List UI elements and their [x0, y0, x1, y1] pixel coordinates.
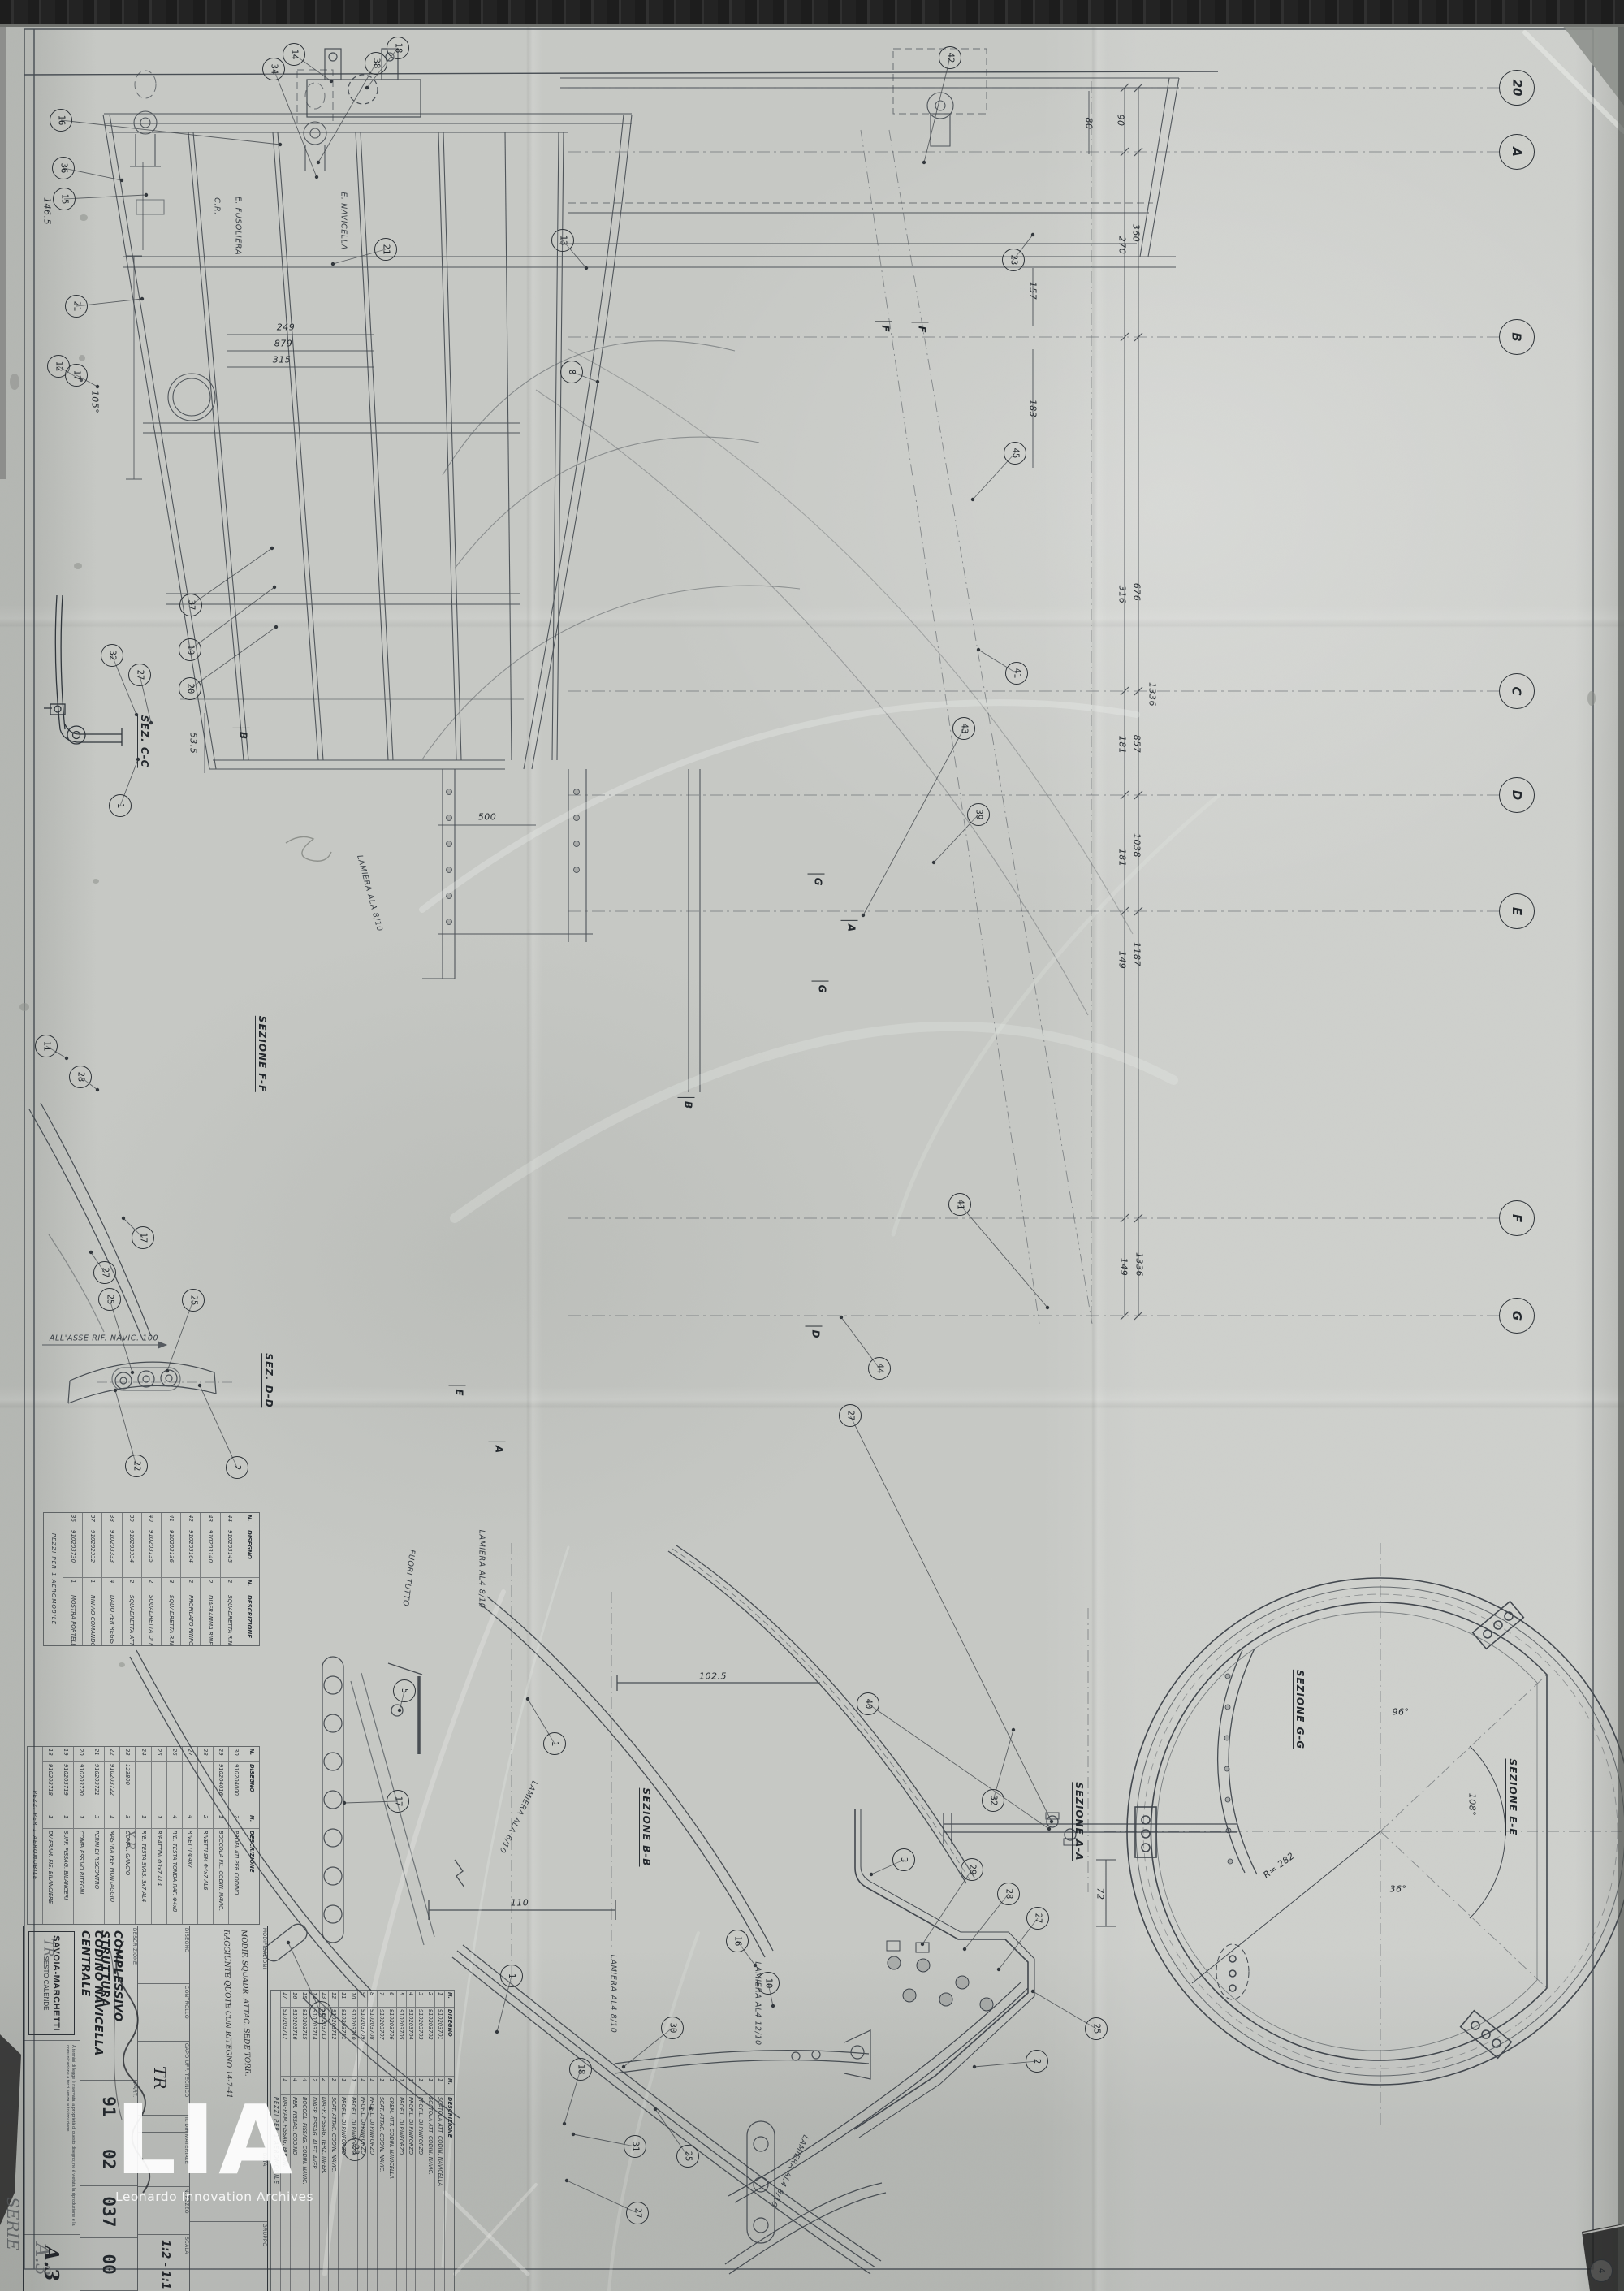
part-qty: 2	[229, 1813, 244, 1829]
part-qty: 1	[105, 1813, 119, 1829]
gruppo-label: GRUPPO	[261, 2224, 266, 2246]
part-number: 910203135	[142, 1528, 161, 1578]
part-qty: 1	[425, 2077, 434, 2095]
revision-note-1: MODIF. SQUADR. ATTAC. SEDE TORR.	[240, 1930, 252, 2077]
part-qty: 1	[281, 2077, 290, 2095]
part-description: SCAT. ATTAC. CODIN. NAVIC.	[329, 2095, 338, 2291]
part-index: 43	[201, 1513, 219, 1528]
sheet-code: A.3	[40, 2246, 63, 2281]
part-number: 910203711	[339, 2008, 348, 2077]
part-description: SQUADRETTA ATTACCO	[123, 1593, 141, 1645]
parts-table-upper: N.DISEGNON.DESCRIZIONE449102031452SQUADR…	[43, 1512, 260, 1646]
part-qty: 1	[397, 2077, 406, 2095]
revision-box: MODIFICAZIONI MODIF. SQUADR. ATTAC. SEDE…	[190, 1926, 267, 2151]
part-number: DISEGNO	[244, 1762, 259, 1813]
part-qty: 4	[183, 1813, 197, 1829]
part-number: 910203708	[368, 2008, 377, 2077]
data-label: DATA	[261, 2153, 266, 2167]
part-number: 910203719	[58, 1762, 73, 1813]
part-description: DIAFR. FISSAG. ALET. AVER.	[310, 2095, 319, 2291]
part-number: 910203701	[435, 2008, 444, 2077]
part-qty: 3	[89, 1813, 104, 1829]
part-number: DISEGNO	[240, 1528, 259, 1578]
drawing-number-segment: 91	[80, 2081, 136, 2133]
part-index: 30	[229, 1747, 244, 1762]
part-index: 12	[329, 1991, 338, 2008]
part-index: 20	[74, 1747, 89, 1762]
part-index: 28	[198, 1747, 213, 1762]
part-index: 39	[123, 1513, 141, 1528]
part-number: 910203717	[281, 2008, 290, 2077]
part-index: 9	[358, 1991, 367, 2008]
part-index: 8	[368, 1991, 377, 2008]
part-index: 25	[152, 1747, 166, 1762]
part-description: MOSTRA PORTELLO	[63, 1593, 82, 1645]
table-row: 209102037201COMPLESSIVO RITEGNI	[73, 1747, 89, 1924]
part-description: DADO PER REGISTRO	[103, 1593, 122, 1645]
part-index: 1	[435, 1991, 444, 2008]
part-qty: 2	[201, 1578, 219, 1593]
part-index: 42	[181, 1513, 200, 1528]
part-qty: 2	[310, 2077, 319, 2095]
part-index: 11	[339, 1991, 348, 2008]
part-number: 910203136	[162, 1528, 180, 1578]
company-city: SESTO CALENDE	[42, 1956, 50, 2011]
part-index: 19	[58, 1747, 73, 1762]
part-description: RIB. TESTA SVAS. 3x7 AL4	[136, 1829, 151, 1924]
part-description: BOCCOL. FISSAG. CODIN. NAVIC.	[300, 2095, 309, 2291]
part-description: SQUADRETTA RINFORZO	[162, 1593, 180, 1645]
pezzo-label: N. PEZZO	[184, 2189, 188, 2214]
part-description: RIVETTI SM Φ4x7 AL6	[198, 1829, 213, 1924]
part-qty: 1	[136, 1813, 151, 1829]
part-description: DIAFRAMMA RINFORZO	[201, 1593, 219, 1645]
part-index: 38	[103, 1513, 122, 1528]
part-description: BOCCOLA FIL. CODIN. NAVIC.	[214, 1829, 228, 1924]
table-row: 49102037041PROFIL. DI RINFORZO	[406, 1991, 416, 2291]
part-number: 910203730	[63, 1528, 82, 1578]
table-row: 274RIVETTI Φ4x7	[182, 1747, 197, 1924]
part-qty: 4	[167, 1813, 182, 1829]
part-description: PROFILATO RINFORZATO	[181, 1593, 200, 1645]
part-number: 910205164	[181, 1528, 200, 1578]
table-row: 199102037191SUPP. FISSAG. BILANCERI	[58, 1747, 73, 1924]
part-qty: 1	[83, 1578, 101, 1593]
table-row: 139102037132DIAFR. FISSAG. TERZ. INFER.	[319, 1991, 329, 2291]
part-qty: 1	[63, 1578, 82, 1593]
part-description: PROFIL. DI RINFORZO	[397, 2095, 406, 2291]
table-row: 419102031363SQUADRETTA RINFORZO	[161, 1513, 180, 1645]
table-row: 379102023321RINVIO COMANDO	[82, 1513, 101, 1645]
part-number: 910203714	[310, 2008, 319, 2077]
table-row: 169102037164PER. FISSAG. CODINO	[290, 1991, 300, 2291]
part-qty: 2	[320, 2077, 329, 2095]
table-row: 251RIBATTINI Φ3x7 AL4	[151, 1747, 166, 1924]
part-description: DESCRIZIONE	[244, 1829, 259, 1924]
part-number	[152, 1762, 166, 1813]
part-number: 910203718	[43, 1762, 58, 1813]
part-index: 41	[162, 1513, 180, 1528]
table-row: 429102051642PROFILATO RINFORZATO	[180, 1513, 200, 1645]
scala-label: SCALA	[184, 2237, 188, 2254]
table-row: 89102037081PROFIL. DI RINFORZO	[367, 1991, 377, 2291]
parts-table-standard: N.DISEGNON.DESCRIZIONE309102040002PROFIL…	[27, 1746, 260, 1925]
materiale-label: MATERIALE	[184, 2134, 188, 2164]
table-row: 449102031452SQUADRETTA RINFORZO	[220, 1513, 240, 1645]
table-row: 282RIVETTI SM Φ4x7 AL6	[197, 1747, 213, 1924]
part-qty: 1	[387, 2077, 396, 2095]
revision-label: MODIFICAZIONI	[261, 1928, 266, 1969]
table-row: 19102037011SCATOLA ATT. CODIN. NAVICELLA	[434, 1991, 444, 2291]
part-index: 18	[43, 1747, 58, 1762]
part-index: 26	[167, 1747, 182, 1762]
part-number: 910203722	[105, 1762, 119, 1813]
part-index: N.	[445, 1991, 454, 2008]
part-number: 910203702	[425, 2008, 434, 2077]
part-description: PROFIL. DI RINFORZO	[368, 2095, 377, 2291]
part-number: 910203334	[123, 1528, 141, 1578]
part-description: CREM. ATT. CODIN. NAVICELLA	[387, 2095, 396, 2291]
title-block: MODIFICAZIONI MODIF. SQUADR. ATTAC. SEDE…	[23, 1926, 268, 2291]
table-row: 59102037051PROFIL. DI RINFORZO	[396, 1991, 406, 2291]
legal-text: A termini di legge è riservata la propri…	[28, 2045, 76, 2230]
part-qty: 2	[123, 1578, 141, 1593]
table-footer: PEZZI PER 1 AEROMOBILE	[28, 1747, 42, 1924]
part-number: 910203721	[89, 1762, 104, 1813]
part-description: PROFIL. DI RINFORZO	[407, 2095, 416, 2291]
part-description: COMPLESSIVO RITEGNI	[74, 1829, 89, 1924]
part-index: 40	[142, 1513, 161, 1528]
part-number: 910203707	[378, 2008, 387, 2077]
part-qty: 4	[300, 2077, 309, 2095]
table-row: 99102037091PROFIL. DI RINFORZO	[357, 1991, 367, 2291]
part-index: 2	[425, 1991, 434, 2008]
part-index: N.	[244, 1747, 259, 1762]
company-name: SAVOIA-MARCHETTI	[51, 1935, 61, 2031]
table-footer: PEZZI PER 1 AEROMOBILE	[271, 1991, 280, 2291]
part-qty: 1	[58, 1813, 73, 1829]
part-index: 14	[310, 1991, 319, 2008]
part-qty: 2	[221, 1578, 240, 1593]
part-number: 910204016	[214, 1762, 228, 1813]
revision-note-2: RAGGIUNTE QUOTE CON RITEGNO 14-7-41	[222, 1930, 233, 2099]
part-number: 910203715	[300, 2008, 309, 2077]
part-qty: N.	[445, 2077, 454, 2095]
part-number	[198, 1762, 213, 1813]
part-description: DIAFR. FISSAG. TERZ. INFER.	[320, 2095, 329, 2291]
table-row: 389102033334DADO PER REGISTRO	[102, 1513, 122, 1645]
part-description: PROFIL. DI RINFORZO	[416, 2095, 425, 2291]
part-qty: 3	[162, 1578, 180, 1593]
table-row: 159102037154BOCCOL. FISSAG. CODIN. NAVIC…	[300, 1991, 309, 2291]
table-row: 399102033342SQUADRETTA ATTACCO	[122, 1513, 141, 1645]
part-index: 27	[183, 1747, 197, 1762]
part-description: DIAFRAM. FIS. BILANCIERE	[43, 1829, 58, 1924]
drawing-number: PART. 910203700	[80, 2081, 136, 2291]
table-row: 369102037301MOSTRA PORTELLO	[63, 1513, 82, 1645]
part-description: PROFIL. DI RINFORZO	[358, 2095, 367, 2291]
part-number: 123800	[120, 1762, 135, 1813]
table-row: 241RIB. TESTA SVAS. 3x7 AL4	[136, 1747, 151, 1924]
table-row: 219102037213PERNI DI RISCONTRO	[89, 1747, 104, 1924]
part-qty: 1	[348, 2077, 357, 2095]
part-description: PROFIL. DI RINFORZO	[339, 2095, 348, 2291]
blueprint-scan-sheet: 20ABCDEFG1636152112173438211418138422345…	[0, 0, 1624, 2291]
part-qty: 1	[416, 2077, 425, 2095]
part-qty: 4	[291, 2077, 300, 2095]
film-edge-strip	[0, 0, 1624, 27]
part-index: 3	[416, 1991, 425, 2008]
table-header-row: N.DISEGNON.DESCRIZIONE	[240, 1513, 259, 1645]
part-description: PER. FISSAG. CODINO	[291, 2095, 300, 2291]
part-qty: 2	[181, 1578, 200, 1593]
part-number: 910203703	[416, 2008, 425, 2077]
table-header-row: N.DISEGNON.DESCRIZIONE	[444, 1991, 454, 2291]
drawing-title-line2: CODINO NAVICELLA CENTRALE	[80, 1930, 104, 2080]
table-row: 69102037061CREM. ATT. CODIN. NAVICELLA	[387, 1991, 396, 2291]
part-number: 910203706	[387, 2008, 396, 2077]
part-number: 910203712	[329, 2008, 338, 2077]
part-number	[183, 1762, 197, 1813]
part-index: 21	[89, 1747, 104, 1762]
disegno-field-label: DISEGNÒ	[184, 1928, 188, 1952]
table-row: 129102037122SCAT. ATTAC. CODIN. NAVIC.	[328, 1991, 338, 2291]
table-row: 189102037181DIAFRAM. FIS. BILANCIERE	[42, 1747, 58, 1924]
table-row: 299102040161BOCCOLA FIL. CODIN. NAVIC.	[213, 1747, 228, 1924]
part-number: 910203140	[201, 1528, 219, 1578]
part-qty: 1	[435, 2077, 444, 2095]
part-qty: 1	[214, 1813, 228, 1829]
part-qty: 1	[339, 2077, 348, 2095]
part-description: DIAFRAM. FISSAG. BULON.	[281, 2095, 290, 2291]
capo-ufficio-label: CAPO UFF. TECNICO	[184, 2043, 188, 2098]
drawing-number-segment: 02	[80, 2133, 136, 2186]
part-qty: N.	[240, 1578, 259, 1593]
table-row: 264RIB. TESTA TONDA RAF. Φ4x8	[166, 1747, 182, 1924]
part-number: 910203716	[291, 2008, 300, 2077]
table-row: 149102037142DIAFR. FISSAG. ALET. AVER.	[309, 1991, 319, 2291]
part-index: 7	[378, 1991, 387, 2008]
part-number: 910203145	[221, 1528, 240, 1578]
part-qty: 4	[103, 1578, 122, 1593]
part-description: RIB. TESTA TONDA RAF. Φ4x8	[167, 1829, 182, 1924]
capo-initials: TR	[150, 2066, 170, 2089]
part-number: 910203333	[103, 1528, 122, 1578]
scala-value: 1:2 - 1:1	[159, 2240, 171, 2289]
part-qty: 2	[198, 1813, 213, 1829]
controllo-field-label: CONTROLLÒ	[184, 1986, 188, 2019]
direttore-label: IL DIRETTORE TECNICO	[184, 2117, 188, 2133]
part-index: 10	[348, 1991, 357, 2008]
part-description: MASTRA PER MONTAGGIO	[105, 1829, 119, 1924]
descrizione-label: DESCRIZIONE	[132, 1928, 136, 1965]
part-description: SQUADRETTA RINFORZO	[221, 1593, 240, 1645]
part-qty: 1	[378, 2077, 387, 2095]
table-header-row: N.DISEGNON.DESCRIZIONE	[244, 1747, 259, 1924]
part-index: 5	[397, 1991, 406, 2008]
table-row: 229102037221MASTRA PER MONTAGGIO	[104, 1747, 119, 1924]
part-index: 44	[221, 1513, 240, 1528]
part-description: SQUADRETTA DI RINVIO	[142, 1593, 161, 1645]
part-number: 910204000	[229, 1762, 244, 1813]
part-description: SCATOLA ATT. CODIN. NAVIC.	[425, 2095, 434, 2291]
table-row: 119102037111PROFIL. DI RINFORZO	[338, 1991, 348, 2291]
drawing-number-segment: 037	[80, 2186, 136, 2239]
table-row: 231238003COMPL. GANCIO	[119, 1747, 135, 1924]
table-row: 109102037101PROFIL. DI RINFORZO	[348, 1991, 357, 2291]
part-qty: 2	[329, 2077, 338, 2095]
part-index: 17	[281, 1991, 290, 2008]
table-footer: PEZZI PER 1 AEROMOBILE	[44, 1513, 63, 1645]
part-index: 15	[300, 1991, 309, 2008]
part-qty: 1	[407, 2077, 416, 2095]
part-number: 910203713	[320, 2008, 329, 2077]
part-number	[136, 1762, 151, 1813]
part-description: SCATOLA ATT. CODIN. NAVICELLA	[435, 2095, 444, 2291]
part-qty: 3	[120, 1813, 135, 1829]
part-qty: N.	[244, 1813, 259, 1829]
part-qty: 1	[74, 1813, 89, 1829]
table-row: 439102031402DIAFRAMMA RINFORZO	[200, 1513, 219, 1645]
table-row: 179102037171DIAFRAM. FISSAG. BULON.	[280, 1991, 290, 2291]
drawing-number-segment: 00	[80, 2238, 136, 2291]
part-index: 13	[320, 1991, 329, 2008]
part-index: 29	[214, 1747, 228, 1762]
part-description: RINVIO COMANDO	[83, 1593, 101, 1645]
part-description: SUPP. FISSAG. BILANCERI	[58, 1829, 73, 1924]
part-qty: 2	[142, 1578, 161, 1593]
part-qty: 1	[43, 1813, 58, 1829]
table-row: 309102040002PROFILATI PER CODINO	[228, 1747, 244, 1924]
table-row: 29102037021SCATOLA ATT. CODIN. NAVIC.	[425, 1991, 434, 2291]
part-index: 16	[291, 1991, 300, 2008]
part-qty: 1	[368, 2077, 377, 2095]
part-index: 23	[120, 1747, 135, 1762]
part-index: 37	[83, 1513, 101, 1528]
part-description: DESCRIZIONE	[240, 1593, 259, 1645]
part-qty: 1	[358, 2077, 367, 2095]
part-index: 22	[105, 1747, 119, 1762]
part-number: DISEGNO	[445, 2008, 454, 2077]
part-qty: 1	[152, 1813, 166, 1829]
part-number: 910203709	[358, 2008, 367, 2077]
part-description: RIBATTINI Φ3x7 AL4	[152, 1829, 166, 1924]
part-description: PROFIL. DI RINFORZO	[348, 2095, 357, 2291]
parts-table-lower: N.DISEGNON.DESCRIZIONE19102037011SCATOLA…	[270, 1990, 455, 2291]
part-index: N.	[240, 1513, 259, 1528]
table-row: 409102031352SQUADRETTA DI RINVIO	[141, 1513, 161, 1645]
part-number: 910203720	[74, 1762, 89, 1813]
part-index: 24	[136, 1747, 151, 1762]
part-description: COMPL. GANCIO	[120, 1829, 135, 1924]
part-number: 910202332	[83, 1528, 101, 1578]
part-description: PERNI DI RISCONTRO	[89, 1829, 104, 1924]
part-index: 36	[63, 1513, 82, 1528]
part-index: 6	[387, 1991, 396, 2008]
table-row: 39102037031PROFIL. DI RINFORZO	[415, 1991, 425, 2291]
table-row: 79102037071SCAT. ATTAC. CODIN. NAVIC.	[377, 1991, 387, 2291]
part-number: 910203705	[397, 2008, 406, 2077]
part-index: 4	[407, 1991, 416, 2008]
part-number	[167, 1762, 182, 1813]
part-description: DESCRIZIONE	[445, 2095, 454, 2291]
part-label: PART.	[132, 2082, 136, 2097]
part-description: PROFILATI PER CODINO	[229, 1829, 244, 1924]
part-description: RIVETTI Φ4x7	[183, 1829, 197, 1924]
part-number: 910203710	[348, 2008, 357, 2077]
part-description: SCAT. ATTAC. CODIN. NAVIC.	[378, 2095, 387, 2291]
part-number: 910203704	[407, 2008, 416, 2077]
